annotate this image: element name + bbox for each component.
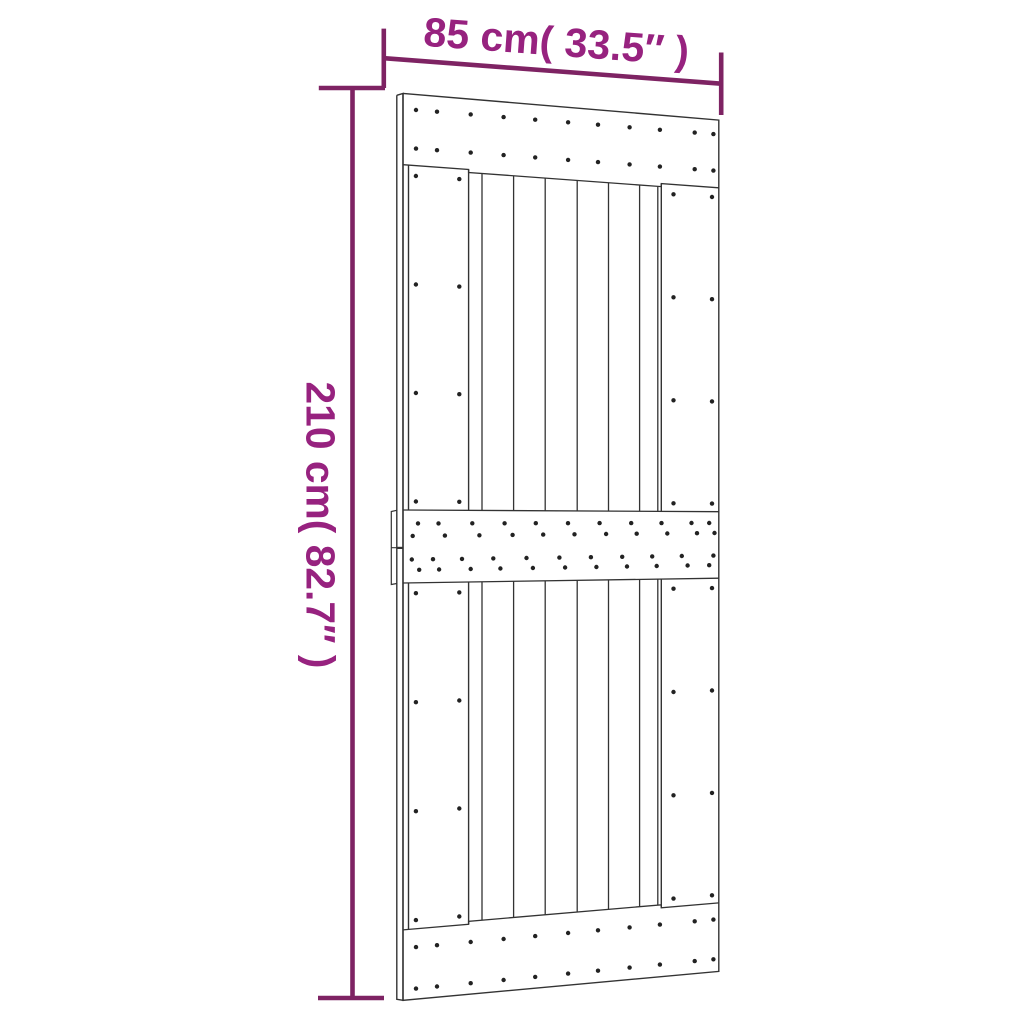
- svg-text:210 cm( 82.7″ ): 210 cm( 82.7″ ): [298, 382, 344, 669]
